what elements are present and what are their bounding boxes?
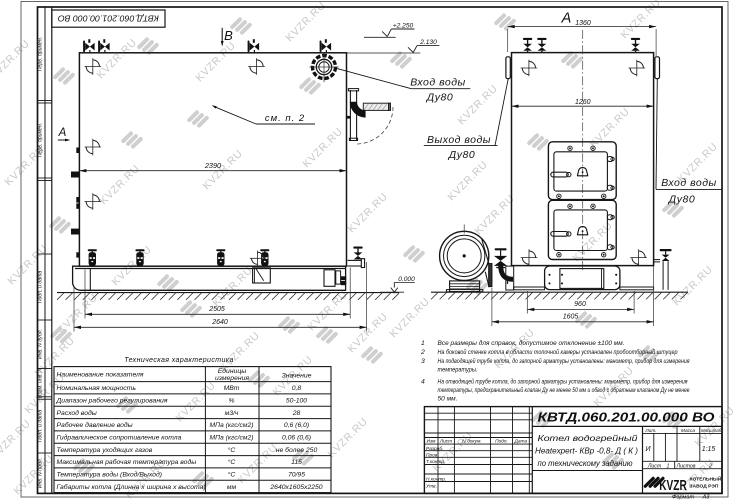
svg-text:Наименование показателя: Наименование показателя: [57, 372, 144, 379]
svg-text:Листов: Листов: [676, 463, 696, 469]
svg-text:0.000: 0.000: [398, 276, 415, 283]
svg-text:Температура воды (Вход/Выход): Температура воды (Вход/Выход): [57, 471, 163, 479]
svg-text:%: %: [228, 398, 234, 405]
svg-text:KVZR.RU: KVZR.RU: [94, 36, 139, 81]
svg-text:Н.контр.: Н.контр.: [426, 476, 446, 482]
svg-text:KVZR.RU: KVZR.RU: [472, 192, 517, 237]
svg-text:1360: 1360: [575, 20, 591, 27]
svg-text:1: 1: [667, 463, 670, 469]
svg-text:Ду80: Ду80: [448, 149, 475, 161]
svg-text:Вход воды: Вход воды: [410, 77, 465, 89]
svg-text:Лист: Лист: [647, 463, 662, 469]
svg-text:KVZR.RU: KVZR.RU: [300, 125, 345, 170]
svg-text:температуры, предохранительный: температуры, предохранительный клапан Ду…: [438, 386, 690, 394]
svg-text:А: А: [58, 127, 67, 139]
svg-text:°С: °С: [228, 471, 236, 479]
svg-text:Подп. и дата: Подп. и дата: [38, 410, 44, 443]
svg-text:Ду80: Ду80: [668, 194, 695, 206]
svg-text:KVZR.RU: KVZR.RU: [210, 264, 255, 309]
svg-text:Изм: Изм: [427, 439, 437, 445]
svg-text:2: 2: [420, 349, 425, 356]
svg-text:2390: 2390: [204, 161, 221, 170]
svg-text:На подводящей трубе котла, до: На подводящей трубе котла, до запорной а…: [438, 357, 690, 365]
svg-text:Перв. примен.: Перв. примен.: [38, 123, 44, 157]
svg-text:KVZR.RU: KVZR.RU: [587, 105, 632, 150]
svg-text:°С: °С: [228, 446, 236, 454]
svg-text:KVZR.RU: KVZR.RU: [325, 415, 370, 460]
svg-text:KVZR.RU: KVZR.RU: [430, 429, 475, 474]
svg-text:Инв. N дубл.: Инв. N дубл.: [38, 329, 44, 359]
svg-text:не более 250: не более 250: [276, 446, 318, 454]
svg-text:Единицы: Единицы: [218, 367, 246, 375]
svg-text:Номинальная мощность: Номинальная мощность: [57, 385, 137, 392]
svg-text:KVZR.RU: KVZR.RU: [445, 158, 490, 203]
svg-text:Расход воды: Расход воды: [57, 409, 97, 417]
svg-text:Все размеры для справок, допус: Все размеры для справок, допустимое откл…: [438, 339, 625, 347]
svg-text:70/95: 70/95: [288, 472, 305, 479]
svg-text:Габариты котла (Длинна х ширин: Габариты котла (Длинна х ширина х высота…: [57, 483, 206, 491]
svg-text:В: В: [224, 28, 233, 43]
svg-text:Техническая характеристика: Техническая характеристика: [124, 357, 234, 364]
svg-text:Перв. примен.: Перв. примен.: [38, 37, 44, 71]
svg-text:температуры.: температуры.: [438, 366, 478, 373]
svg-text:115: 115: [291, 459, 302, 466]
svg-text:На боковой стенке котла в обла: На боковой стенке котла в области топочн…: [438, 348, 678, 356]
svg-text:0,06 (0,6): 0,06 (0,6): [282, 435, 311, 442]
svg-text:1:15: 1:15: [702, 446, 716, 453]
svg-text:А3: А3: [702, 495, 711, 500]
svg-text:по техническому заданию: по техническому заданию: [538, 458, 633, 468]
svg-text:0,8: 0,8: [292, 385, 302, 392]
svg-text:KVZR.RU: KVZR.RU: [670, 263, 715, 308]
svg-text:960: 960: [574, 301, 586, 308]
svg-text:N докум.: N докум.: [462, 439, 481, 445]
svg-text:50 мм.: 50 мм.: [438, 395, 458, 402]
svg-text:м3/ч: м3/ч: [225, 410, 239, 417]
svg-text:4: 4: [421, 379, 425, 386]
svg-text:А: А: [561, 11, 572, 27]
svg-text:Т.контр.: Т.контр.: [426, 459, 445, 465]
svg-text:3: 3: [421, 358, 425, 365]
svg-text:KVZR.RU: KVZR.RU: [193, 39, 238, 84]
svg-text:2640х1605х2250: 2640х1605х2250: [269, 484, 322, 491]
svg-text:Масса: Масса: [681, 428, 696, 434]
svg-text:На отводящей трубе котла, до з: На отводящей трубе котла, до запорной ар…: [438, 378, 688, 386]
svg-text:KVZR.RU: KVZR.RU: [97, 162, 142, 207]
svg-text:°С: °С: [228, 458, 236, 466]
svg-text:ЗАВОД РЭП: ЗАВОД РЭП: [690, 483, 719, 489]
svg-text:Вход воды: Вход воды: [661, 177, 716, 189]
svg-text:Котел водогрейный: Котел водогрейный: [538, 433, 638, 443]
svg-text:Разраб.: Разраб.: [426, 446, 443, 452]
svg-text:2: 2: [708, 463, 712, 469]
svg-text:KVZR.RU: KVZR.RU: [455, 82, 500, 127]
svg-text:Значение: Значение: [282, 373, 312, 380]
svg-text:2505: 2505: [208, 306, 225, 313]
svg-text:1605: 1605: [563, 313, 579, 320]
svg-text:2640: 2640: [211, 319, 228, 326]
svg-text:см. п. 2: см. п. 2: [265, 113, 305, 124]
svg-text:измерения: измерения: [215, 375, 249, 382]
svg-text:Утв.: Утв.: [426, 483, 437, 489]
svg-text:КВТД.060.201.00.000 ВО: КВТД.060.201.00.000 ВО: [57, 14, 159, 23]
svg-text:50-100: 50-100: [286, 398, 307, 405]
svg-text:1: 1: [421, 340, 425, 347]
svg-text:Максимальная рабочая температу: Максимальная рабочая температура воды: [57, 458, 197, 466]
svg-text:КВТД.060.201.00.000 ВО: КВТД.060.201.00.000 ВО: [538, 410, 715, 425]
svg-text:МПа (кгс/см2): МПа (кгс/см2): [210, 422, 254, 429]
svg-text:Лит.: Лит.: [644, 428, 656, 434]
svg-text:28: 28: [292, 410, 301, 417]
svg-text:Heatexpert- КВр -0,8- Д ( К ): Heatexpert- КВр -0,8- Д ( К ): [535, 446, 638, 456]
svg-text:KVZR.RU: KVZR.RU: [11, 452, 56, 497]
svg-text:Ду80: Ду80: [426, 92, 453, 104]
svg-text:KVZR.RU: KVZR.RU: [0, 417, 33, 462]
svg-text:KVZR.RU: KVZR.RU: [387, 295, 432, 340]
svg-text:Взам. инв. N: Взам. инв. N: [38, 368, 44, 398]
svg-text:2.130: 2.130: [419, 39, 437, 46]
svg-text:+2.250: +2.250: [393, 22, 414, 29]
svg-text:МВт: МВт: [224, 385, 240, 392]
svg-text:Диапазон рабочего регулировани: Диапазон рабочего регулирования: [56, 397, 168, 405]
svg-text:Выход воды: Выход воды: [427, 134, 491, 146]
svg-text:KVZR.RU: KVZR.RU: [570, 219, 615, 264]
svg-text:KVZR.RU: KVZR.RU: [5, 242, 50, 287]
svg-text:Температура уходящих газов: Температура уходящих газов: [57, 446, 153, 454]
svg-text:Дата: Дата: [513, 439, 527, 445]
svg-text:KVZR.RU: KVZR.RU: [345, 190, 390, 235]
svg-text:мм: мм: [227, 484, 237, 491]
svg-text:1260: 1260: [575, 99, 591, 106]
svg-text:Пров.: Пров.: [426, 452, 439, 458]
svg-text:Подп. и дата: Подп. и дата: [38, 271, 44, 304]
svg-text:KVZR.RU: KVZR.RU: [235, 441, 280, 486]
svg-text:МПа (кгс/см2): МПа (кгс/см2): [210, 435, 254, 442]
svg-text:KVZR.RU: KVZR.RU: [173, 379, 218, 424]
svg-text:И: И: [645, 446, 651, 453]
svg-text:Лист: Лист: [439, 439, 452, 445]
svg-text:KVZR: KVZR: [659, 478, 687, 494]
svg-text:Формат: Формат: [672, 495, 695, 500]
svg-text:Масштаб: Масштаб: [701, 428, 721, 434]
svg-text:0,6 (6,0): 0,6 (6,0): [284, 422, 309, 429]
svg-text:Подп.: Подп.: [495, 439, 508, 445]
svg-text:Гидравлическое сопротивление к: Гидравлическое сопротивление котла: [57, 434, 182, 442]
svg-text:Рабочее давление воды: Рабочее давление воды: [57, 421, 133, 429]
svg-text:KVZR.RU: KVZR.RU: [0, 37, 32, 82]
svg-text:KVZR.RU: KVZR.RU: [345, 310, 390, 355]
svg-text:Инв. N подл.: Инв. N подл.: [38, 458, 44, 488]
